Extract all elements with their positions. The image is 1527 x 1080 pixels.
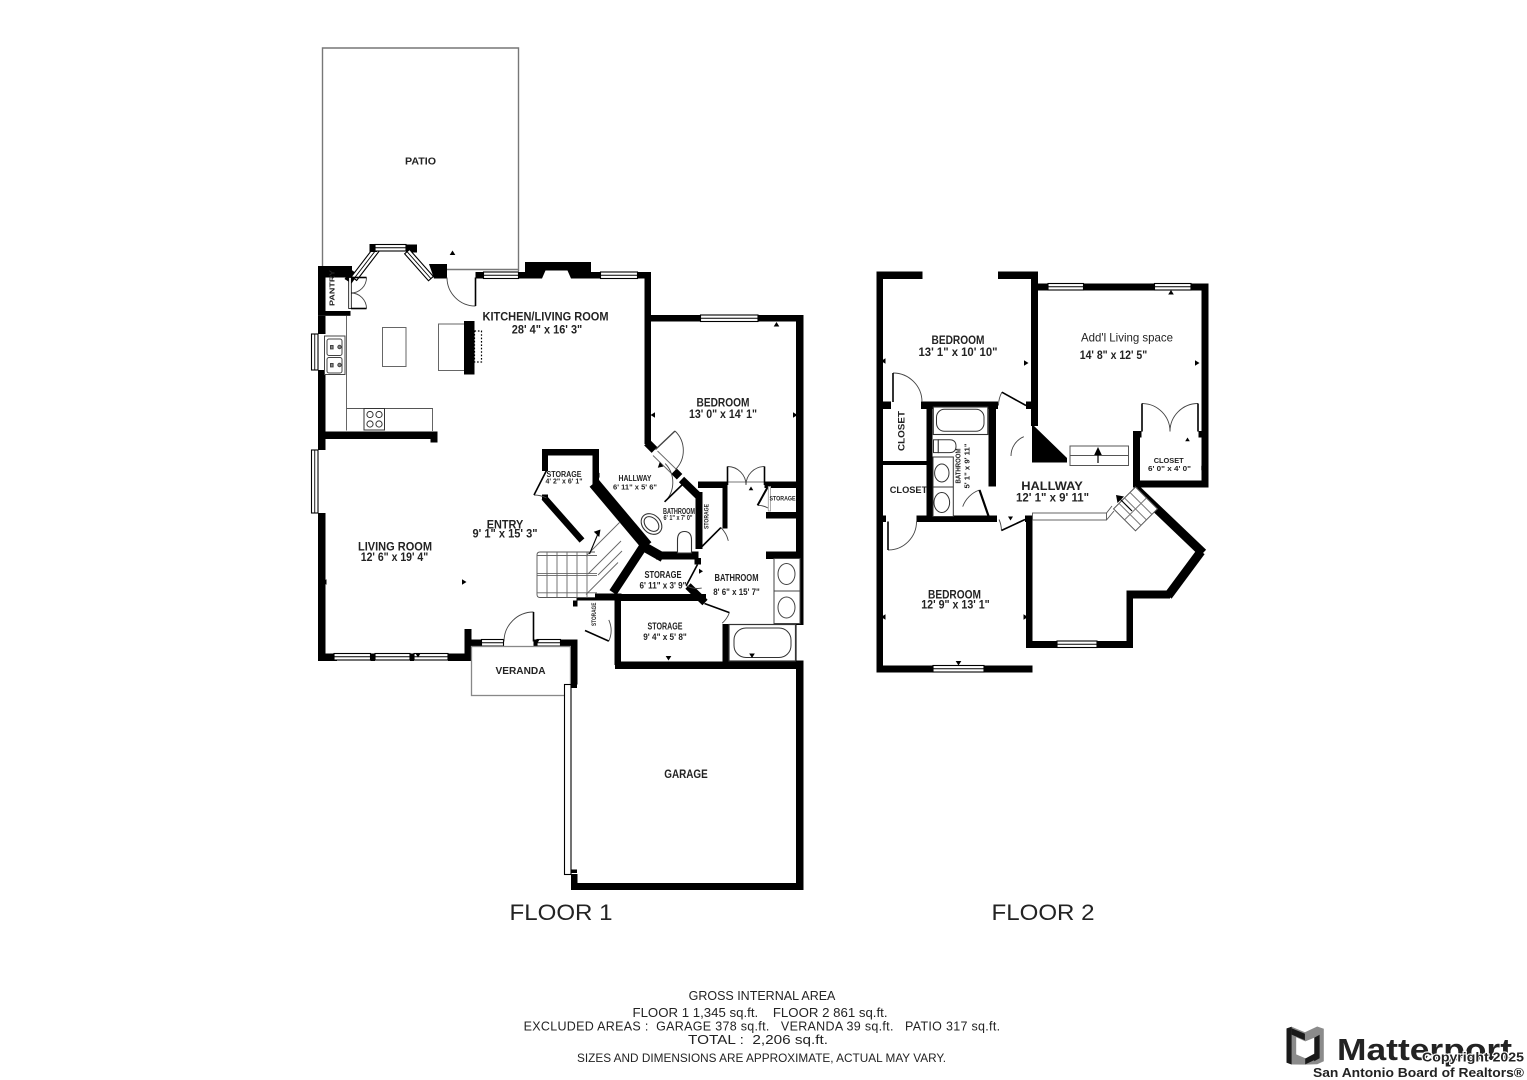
svg-text:4' 2" x 6' 1": 4' 2" x 6' 1" (546, 477, 583, 486)
svg-text:BATHROOM: BATHROOM (715, 573, 759, 584)
svg-text:12' 6" x 19' 4": 12' 6" x 19' 4" (361, 552, 429, 564)
svg-text:KITCHEN/LIVING ROOM: KITCHEN/LIVING ROOM (483, 310, 609, 324)
svg-text:STORAGE: STORAGE (591, 603, 598, 627)
svg-text:Copyright 2025: Copyright 2025 (1422, 1050, 1524, 1065)
svg-text:PANTRY: PANTRY (330, 270, 337, 306)
svg-text:VERANDA: VERANDA (496, 665, 546, 677)
svg-text:13' 0" x 14' 1": 13' 0" x 14' 1" (689, 409, 757, 421)
svg-text:CLOSET: CLOSET (1154, 456, 1184, 465)
svg-text:San Antonio Board of Realtors®: San Antonio Board of Realtors® (1313, 1065, 1524, 1080)
svg-text:SIZES AND DIMENSIONS ARE APPRO: SIZES AND DIMENSIONS ARE APPROXIMATE, AC… (577, 1053, 946, 1065)
svg-text:BATHROOM: BATHROOM (954, 449, 963, 484)
svg-text:PATIO: PATIO (405, 156, 436, 168)
svg-text:12' 9" x 13' 1": 12' 9" x 13' 1" (921, 600, 990, 612)
svg-text:FLOOR 1: FLOOR 1 (510, 900, 613, 925)
svg-text:HALLWAY: HALLWAY (1021, 479, 1083, 493)
svg-text:8' 6" x 15' 7": 8' 6" x 15' 7" (713, 587, 760, 598)
svg-text:CLOSET: CLOSET (890, 485, 928, 495)
svg-text:STORAGE: STORAGE (648, 622, 683, 633)
svg-text:STORAGE: STORAGE (645, 569, 682, 581)
svg-text:FLOOR 1 1,345 sq.ft. FLOOR: FLOOR 1 1,345 sq.ft. FLOOR 2 861 sq.ft. (633, 1006, 888, 1020)
svg-text:9' 1" x 15' 3": 9' 1" x 15' 3" (473, 529, 538, 541)
svg-text:BEDROOM: BEDROOM (697, 396, 750, 410)
svg-text:GARAGE: GARAGE (664, 769, 708, 781)
svg-text:STORAGE: STORAGE (704, 504, 711, 529)
svg-text:TOTAL : 2,206 sq.ft.: TOTAL : 2,206 sq.ft. (688, 1032, 828, 1047)
svg-text:6' 1" x 7' 0": 6' 1" x 7' 0" (664, 513, 693, 522)
svg-text:6' 11" x 3' 9": 6' 11" x 3' 9" (640, 581, 687, 592)
svg-text:12' 1" x 9' 11": 12' 1" x 9' 11" (1016, 492, 1089, 504)
svg-text:GROSS INTERNAL AREA: GROSS INTERNAL AREA (689, 989, 836, 1003)
svg-text:CLOSET: CLOSET (897, 410, 907, 451)
svg-text:6' 0" x 4' 0": 6' 0" x 4' 0" (1148, 466, 1191, 473)
svg-text:Add'l Living space: Add'l Living space (1081, 331, 1173, 345)
svg-text:FLOOR 2: FLOOR 2 (992, 900, 1095, 925)
svg-text:9' 4" x 5' 8": 9' 4" x 5' 8" (643, 632, 687, 642)
svg-text:BEDROOM: BEDROOM (932, 333, 985, 347)
svg-text:14' 8" x 12' 5": 14' 8" x 12' 5" (1080, 350, 1148, 362)
svg-text:STORAGE: STORAGE (770, 496, 796, 503)
svg-text:13' 1" x 10' 10": 13' 1" x 10' 10" (919, 347, 998, 359)
svg-text:5' 1" x 9' 11": 5' 1" x 9' 11" (965, 444, 972, 489)
svg-text:6' 11" x 5' 6": 6' 11" x 5' 6" (613, 482, 657, 491)
svg-text:28' 4" x 16' 3": 28' 4" x 16' 3" (512, 325, 583, 337)
